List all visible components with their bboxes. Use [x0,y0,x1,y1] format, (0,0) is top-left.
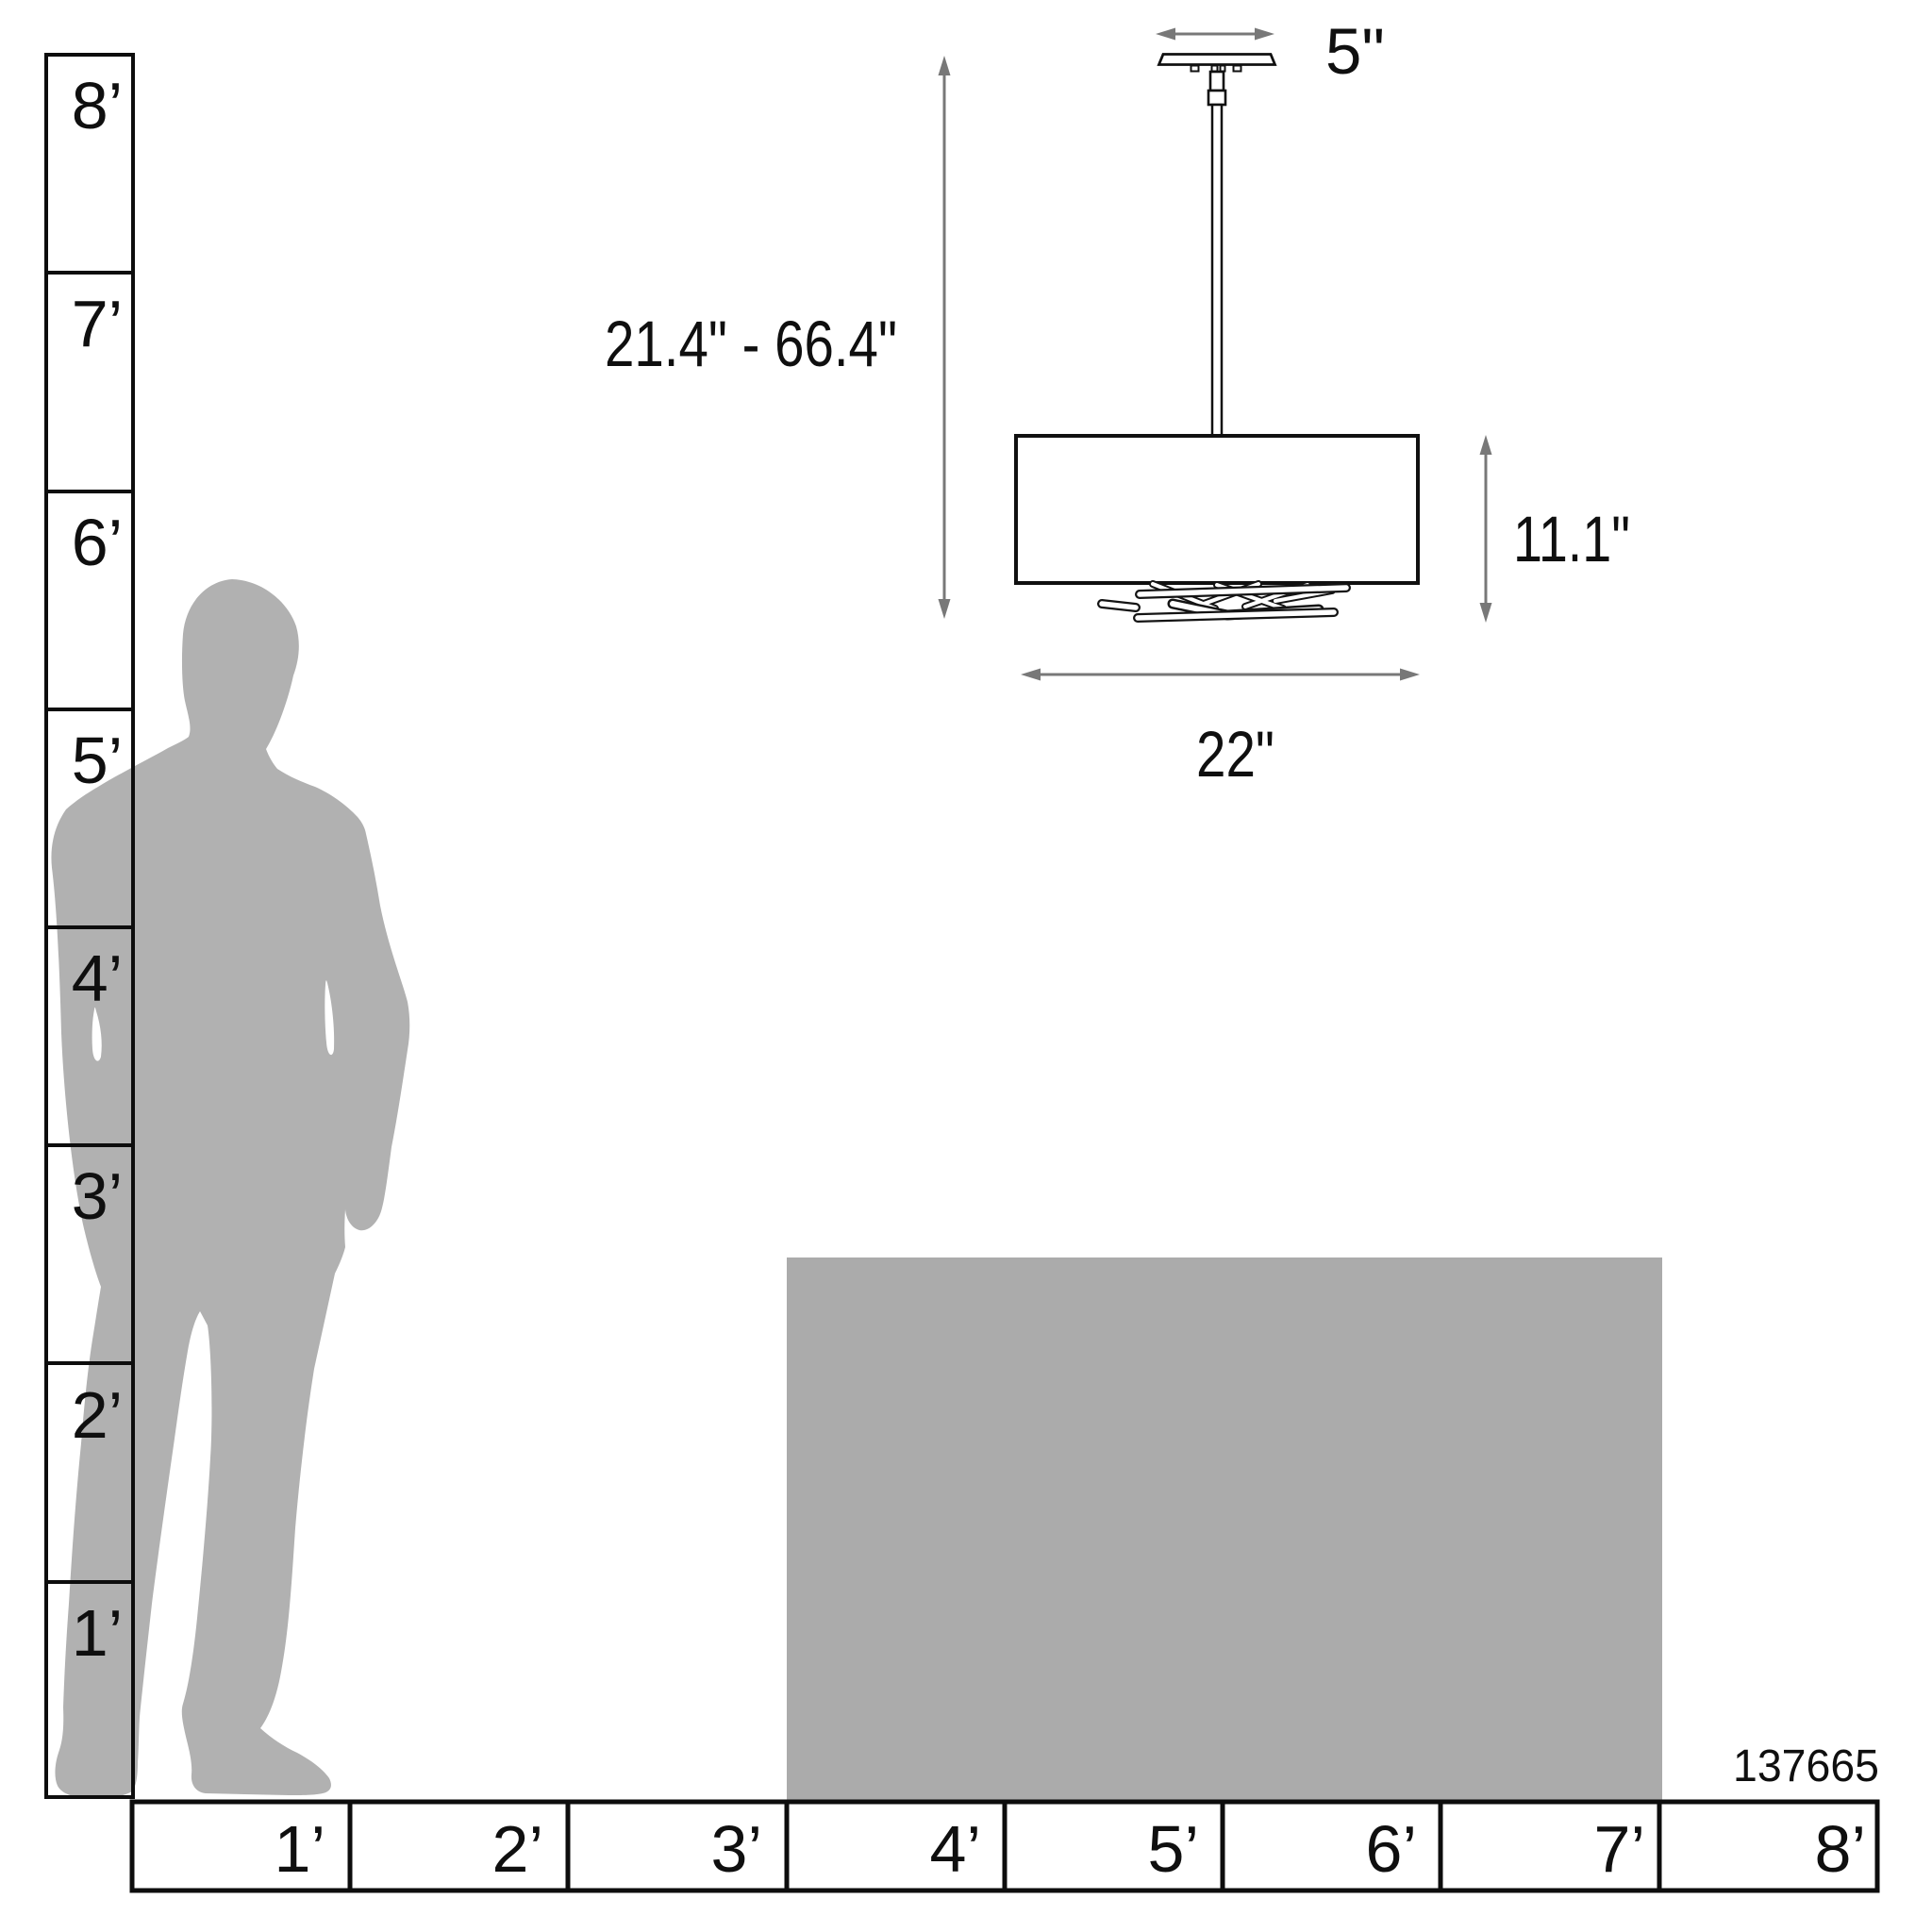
svg-text:2’: 2’ [72,1378,123,1452]
svg-text:5’: 5’ [1148,1812,1199,1886]
svg-text:7’: 7’ [1594,1812,1645,1886]
svg-text:8’: 8’ [72,69,123,142]
svg-text:21.4" - 66.4": 21.4" - 66.4" [605,308,897,380]
svg-text:6’: 6’ [72,506,123,579]
svg-text:5’: 5’ [72,724,123,797]
svg-text:5": 5" [1325,15,1385,88]
svg-text:137665: 137665 [1733,1741,1879,1791]
svg-text:6’: 6’ [1366,1812,1417,1886]
svg-text:7’: 7’ [72,287,123,360]
svg-text:1’: 1’ [72,1596,123,1670]
svg-text:3’: 3’ [711,1812,762,1886]
svg-text:4’: 4’ [72,941,123,1015]
svg-text:1’: 1’ [275,1812,325,1886]
svg-text:3’: 3’ [72,1159,123,1233]
svg-text:2’: 2’ [492,1812,543,1886]
svg-text:4’: 4’ [930,1812,981,1886]
svg-text:8’: 8’ [1815,1812,1866,1886]
svg-text:22": 22" [1196,718,1274,791]
svg-text:11.1": 11.1" [1513,503,1630,575]
